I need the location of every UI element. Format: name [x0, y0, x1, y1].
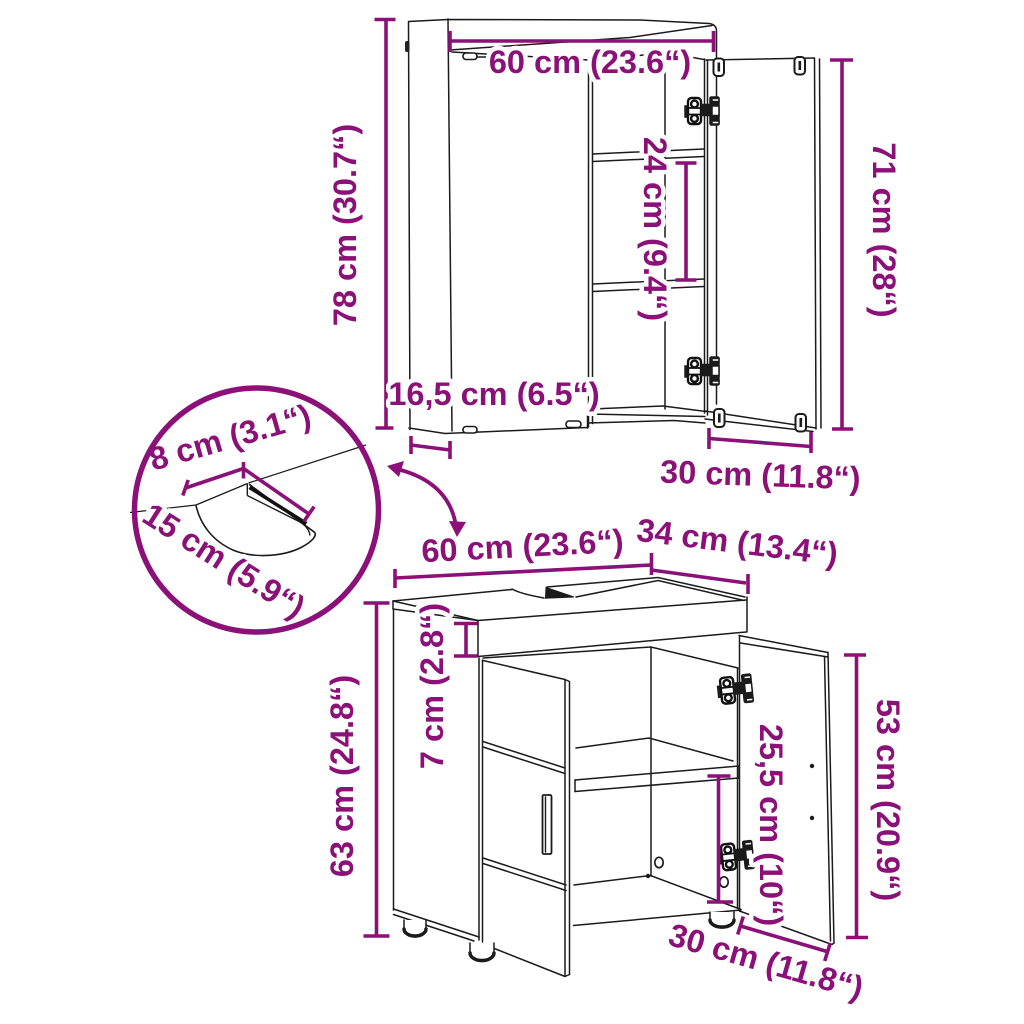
svg-text:60 cm (23.6“): 60 cm (23.6“)	[489, 44, 691, 80]
svg-text:71 cm (28“): 71 cm (28“)	[866, 142, 902, 317]
svg-text:25,5 cm (10“): 25,5 cm (10“)	[753, 724, 789, 926]
svg-text:30 cm (11.8“): 30 cm (11.8“)	[660, 454, 862, 497]
svg-text:7 cm (2.8“): 7 cm (2.8“)	[414, 603, 450, 769]
svg-text:24 cm (9.4“): 24 cm (9.4“)	[637, 137, 673, 321]
svg-text:78 cm (30.7“): 78 cm (30.7“)	[327, 124, 363, 326]
svg-text:53 cm (20.9“): 53 cm (20.9“)	[870, 699, 906, 901]
svg-text:16,5 cm (6.5“): 16,5 cm (6.5“)	[388, 376, 599, 412]
svg-text:63 cm (24.8“): 63 cm (24.8“)	[324, 675, 360, 877]
